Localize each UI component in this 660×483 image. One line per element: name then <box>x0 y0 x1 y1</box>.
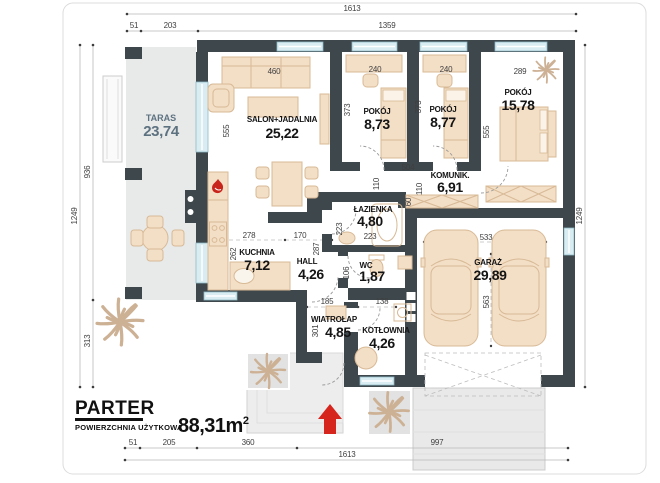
floor-plan-drawing: TARAS 23,74 SALON+JADALNIA 25,22 POKÓJ 8… <box>0 0 660 483</box>
dimension-label: 533 <box>480 233 493 242</box>
dimension-label: 51 <box>130 21 139 30</box>
dimension-label: 106 <box>342 266 351 279</box>
pillow <box>383 90 404 101</box>
title-underline <box>75 418 143 421</box>
room-area-label: 25,22 <box>265 125 299 141</box>
dimension-label: 997 <box>431 438 444 447</box>
dimension-label: 1249 <box>575 207 584 225</box>
room-name-label: TARAS <box>146 113 176 123</box>
dimension-label: 360 <box>242 438 255 447</box>
room-area-label: 6,91 <box>437 179 463 195</box>
dimension-label: 205 <box>163 438 176 447</box>
room-area-label: 1,87 <box>359 268 385 284</box>
dimension-label: 563 <box>482 295 491 308</box>
room-area-label: 29,89 <box>473 267 507 283</box>
dimension-label: 240 <box>369 65 382 74</box>
chair <box>305 186 318 198</box>
dimension-label: 373 <box>414 100 423 113</box>
sofa <box>222 57 310 88</box>
dimension-label: 1613 <box>344 4 362 13</box>
room-name-label: KOTŁOWNIA <box>362 326 410 335</box>
dimension-label: 170 <box>294 231 307 240</box>
room-name-label: POKÓJ <box>363 107 390 116</box>
chair <box>363 74 378 87</box>
dining-table <box>272 162 302 206</box>
terrace-post <box>125 47 142 59</box>
hallway-wardrobe <box>406 195 478 208</box>
room-name-label: WIATROŁAP <box>311 315 358 324</box>
room-area-label: 4,85 <box>325 324 351 340</box>
dimension-label: 555 <box>222 124 231 137</box>
room-name-label: KUCHNIA <box>239 248 275 257</box>
dimension-label: 1359 <box>379 21 397 30</box>
dimension-label: 287 <box>312 242 321 255</box>
car <box>489 230 549 346</box>
terrace-post <box>125 168 142 180</box>
pillow <box>540 110 547 130</box>
headboard <box>548 111 556 157</box>
dimension-label: 138 <box>376 297 389 306</box>
area-superscript: 2 <box>243 415 249 427</box>
dimension-label: 110 <box>372 177 381 190</box>
dimension-label: 313 <box>83 334 92 347</box>
tv-bench <box>320 94 329 144</box>
chair <box>147 216 163 228</box>
area-number: 88,31m <box>178 415 243 437</box>
floor-plan-page: TARAS 23,74 SALON+JADALNIA 25,22 POKÓJ 8… <box>0 0 660 483</box>
coffee-table <box>248 97 298 117</box>
room-area-label: 8,77 <box>430 114 456 130</box>
room-name-label: HALL <box>297 257 318 266</box>
dimension-label: 203 <box>164 21 177 30</box>
room-area-label: 8,73 <box>364 116 390 132</box>
room-name-label: POKÓJ <box>429 105 456 114</box>
pillow <box>446 90 466 101</box>
dimension-label: 60 <box>404 197 413 206</box>
area-caption: POWIERZCHNIA UŻYTKOWA <box>75 423 183 432</box>
dimension-label: 289 <box>514 67 527 76</box>
room-area-label: 15,78 <box>501 97 535 113</box>
dimension-label: 555 <box>482 125 491 138</box>
dimension-label: 301 <box>311 324 320 337</box>
room-name-label: SALON+JADALNIA <box>247 115 318 124</box>
dimension-label: 1249 <box>70 207 79 225</box>
chair <box>147 249 163 261</box>
terrace-post <box>125 287 142 299</box>
driveway <box>413 388 545 470</box>
dimension-label: 373 <box>343 103 352 116</box>
room-area-label: 4,26 <box>298 266 324 282</box>
dimension-label: 240 <box>440 65 453 74</box>
chair <box>305 167 318 179</box>
chimney-block <box>185 190 196 223</box>
room-area-label: 23,74 <box>143 123 180 140</box>
wardrobe <box>406 195 478 208</box>
room-name-label: POKÓJ <box>504 88 531 97</box>
dimension-label: 1613 <box>339 450 357 459</box>
dimension-label: 504 <box>402 163 415 172</box>
planter-bench <box>103 76 122 162</box>
armchair <box>208 84 234 112</box>
dimension-label: 223 <box>335 222 344 235</box>
dimension-label: 460 <box>268 67 281 76</box>
floor-title: PARTER <box>75 398 155 419</box>
room-area-label: 4,80 <box>357 213 383 229</box>
dimension-label: 110 <box>415 182 424 195</box>
garden-table <box>142 225 168 251</box>
chair <box>172 230 184 246</box>
dimension-label: 185 <box>321 297 334 306</box>
room-name-label: GARAŻ <box>474 258 502 267</box>
kitchen-counter <box>208 200 228 290</box>
chair <box>256 167 269 179</box>
dimension-label: 936 <box>83 165 92 178</box>
washbasin <box>398 256 412 269</box>
dimension-label: 51 <box>129 438 138 447</box>
car <box>421 230 481 346</box>
chair <box>437 74 452 87</box>
dimension-label: 223 <box>364 232 377 241</box>
chair <box>256 186 269 198</box>
usable-area-value: 88,31m2 <box>178 415 249 437</box>
chair <box>131 230 143 246</box>
room-area-label: 7,12 <box>244 257 270 273</box>
installation-shaft <box>407 292 416 300</box>
pillow <box>540 133 547 153</box>
room-area-label: 4,26 <box>369 335 395 351</box>
dimension-label: 278 <box>243 231 256 240</box>
dimension-label: 262 <box>229 247 238 260</box>
